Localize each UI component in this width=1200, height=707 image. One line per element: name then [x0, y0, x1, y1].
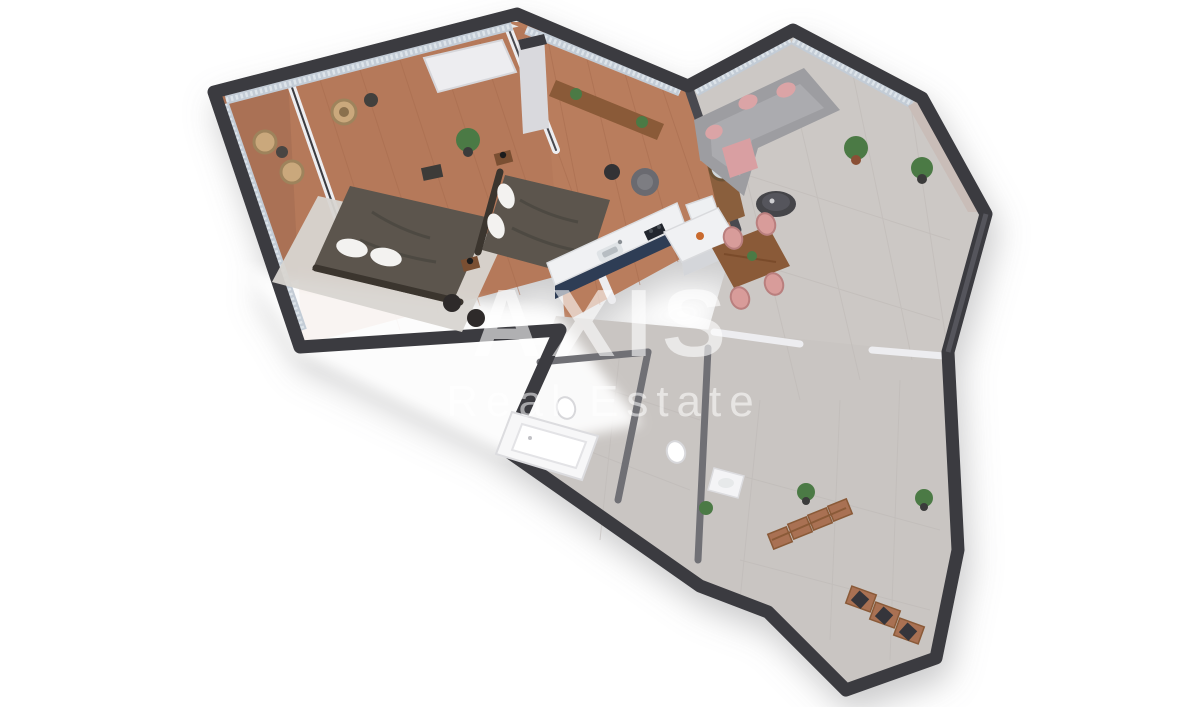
table-decor [770, 199, 775, 204]
drain [528, 436, 532, 440]
table-plant [747, 251, 757, 261]
plant [699, 501, 713, 515]
table-lamp [500, 152, 506, 158]
table-lamp [467, 258, 473, 264]
plant-pot [802, 497, 810, 505]
stool [443, 294, 461, 312]
bench-plant [570, 88, 582, 100]
faucet [618, 240, 622, 244]
coffee-table-top [762, 193, 790, 211]
stool [467, 309, 485, 327]
fruit-bowl [696, 232, 704, 240]
apartment [214, 14, 986, 690]
basin [718, 478, 734, 488]
plant-pot [917, 174, 927, 184]
wicker-chair [254, 131, 276, 153]
plant-pot [851, 155, 861, 165]
wicker-chair [281, 161, 303, 183]
side-table [604, 164, 620, 180]
rattan-chair-cushion [339, 107, 349, 117]
burner [649, 229, 653, 233]
bench-plant [636, 116, 648, 128]
floorplan-render: AXIS Real Estate [0, 0, 1200, 707]
plant-pot [463, 147, 473, 157]
barrel-chair-seat [637, 174, 653, 190]
burner [657, 225, 661, 229]
side-table [364, 93, 378, 107]
balcony-side-table [276, 146, 288, 158]
plant-pot [920, 503, 928, 511]
floorplan-scene [0, 0, 1200, 707]
